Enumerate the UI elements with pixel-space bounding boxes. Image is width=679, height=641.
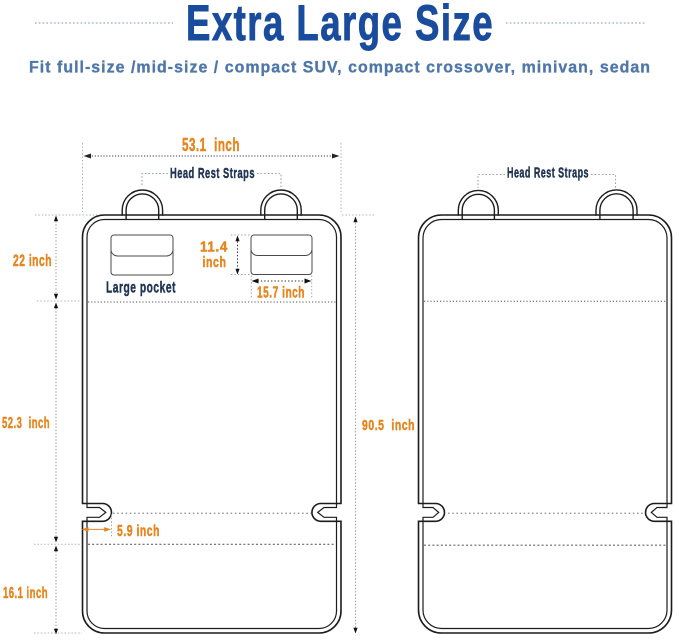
svg-text:5.9 inch: 5.9 inch xyxy=(117,523,160,540)
svg-text:Extra Large Size: Extra Large Size xyxy=(186,0,494,51)
svg-text:11.4: 11.4 xyxy=(200,239,228,256)
svg-text:Head Rest Straps: Head Rest Straps xyxy=(170,165,255,182)
svg-text:inch: inch xyxy=(203,254,227,271)
svg-text:Head Rest Straps: Head Rest Straps xyxy=(507,165,589,182)
svg-text:Fit full-size /mid-size / comp: Fit full-size /mid-size / compact SUV, c… xyxy=(29,58,651,77)
svg-text:Large pocket: Large pocket xyxy=(106,280,176,297)
svg-text:52.3 inch: 52.3 inch xyxy=(2,415,50,432)
svg-text:15.7 inch: 15.7 inch xyxy=(257,285,305,302)
svg-text:53.1 inch: 53.1 inch xyxy=(182,135,240,155)
svg-text:16.1 inch: 16.1 inch xyxy=(3,585,48,602)
svg-text:22 inch: 22 inch xyxy=(13,251,52,270)
svg-text:90.5 inch: 90.5 inch xyxy=(362,417,415,434)
